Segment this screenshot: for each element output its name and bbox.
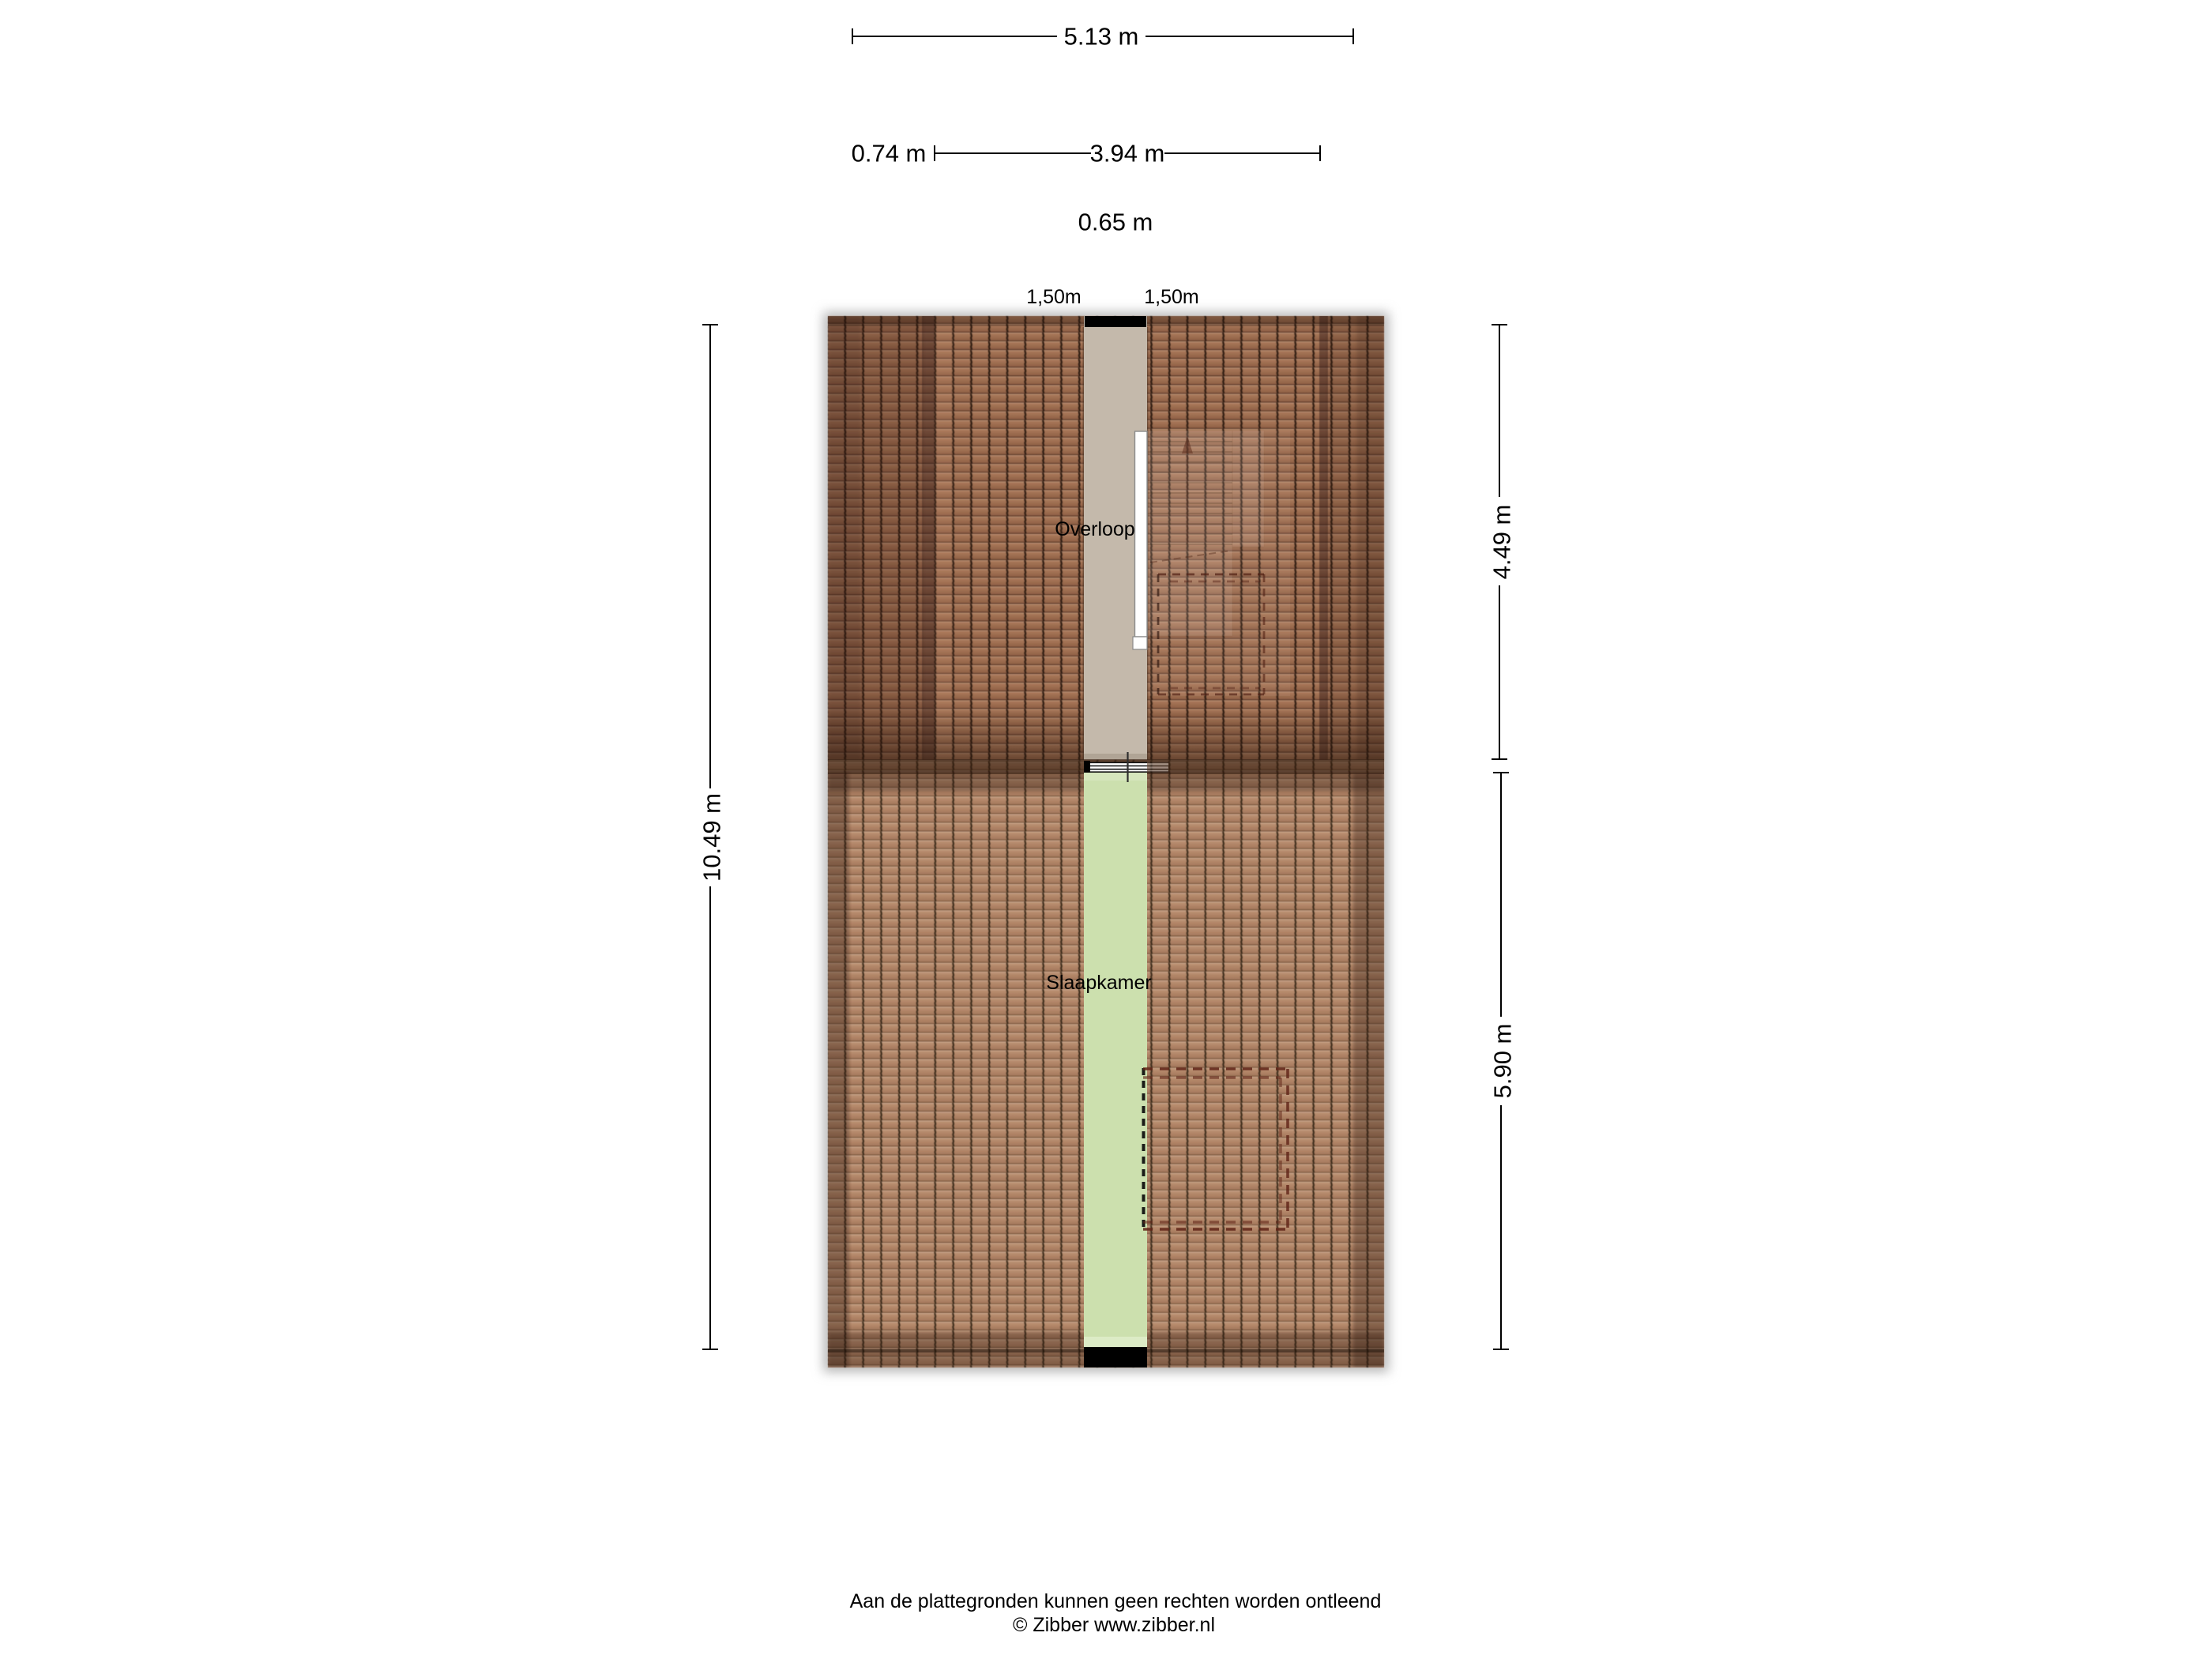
svg-text:1,50m: 1,50m	[1026, 286, 1081, 308]
svg-text:5.13 m: 5.13 m	[1064, 23, 1139, 51]
svg-text:0.65 m: 0.65 m	[1078, 209, 1153, 236]
svg-text:© Zibber www.zibber.nl: © Zibber www.zibber.nl	[1013, 1614, 1215, 1636]
svg-text:3.94 m: 3.94 m	[1090, 140, 1165, 167]
svg-text:5.90 m: 5.90 m	[1489, 1024, 1517, 1099]
svg-text:10.49 m: 10.49 m	[698, 793, 726, 882]
svg-text:1,50m: 1,50m	[1144, 286, 1198, 308]
svg-text:Aan de plattegronden kunnen ge: Aan de plattegronden kunnen geen rechten…	[850, 1590, 1382, 1612]
svg-text:Slaapkamer: Slaapkamer	[1046, 972, 1151, 994]
svg-text:0.74 m: 0.74 m	[852, 140, 927, 167]
svg-text:Overloop: Overloop	[1055, 518, 1134, 540]
svg-text:4.49 m: 4.49 m	[1488, 505, 1516, 580]
